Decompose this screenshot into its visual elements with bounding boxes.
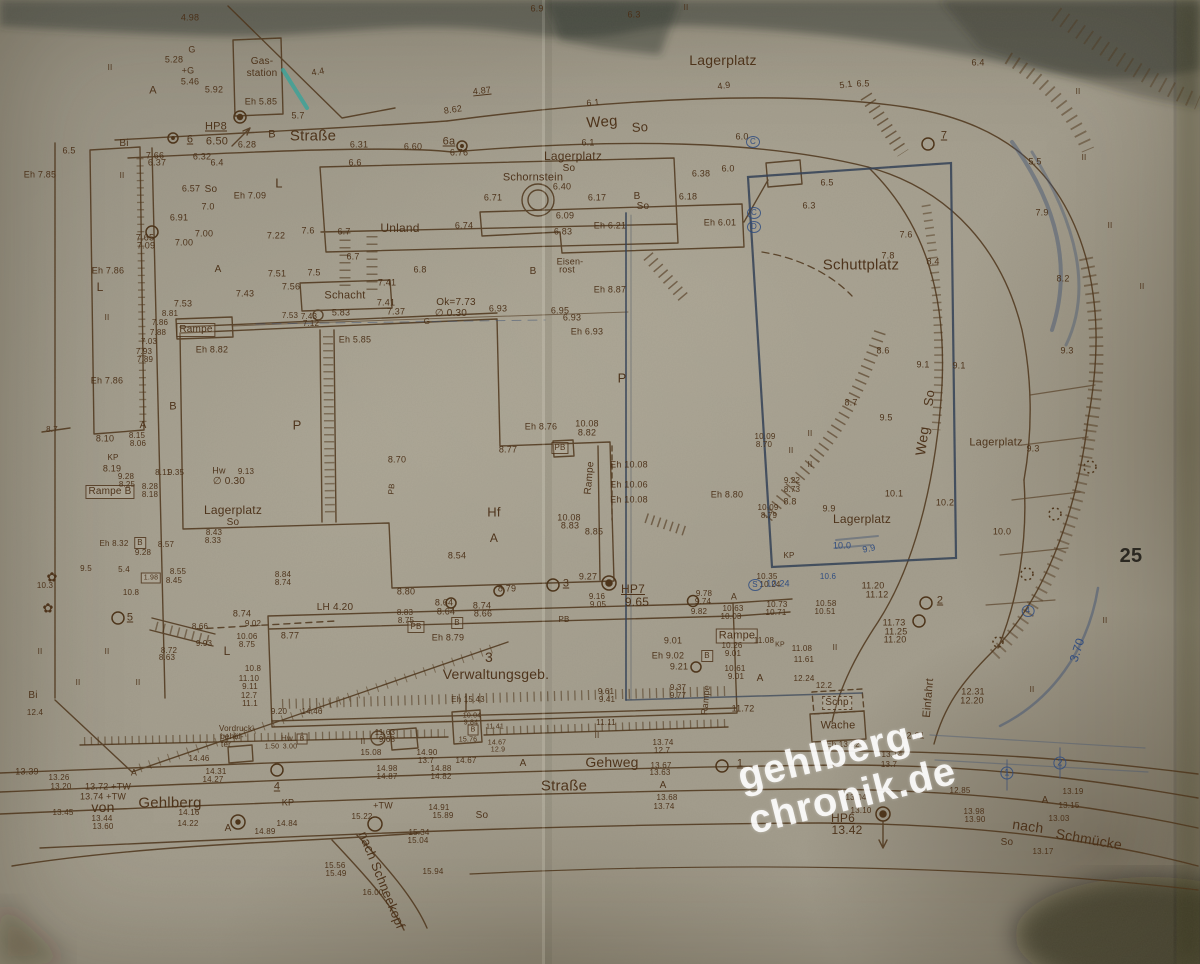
map-label: 4 bbox=[1022, 605, 1035, 617]
map-label: Eh 8.87 bbox=[594, 286, 626, 295]
map-label: Lagerplatz bbox=[544, 150, 602, 162]
map-label: 8.8 bbox=[783, 498, 796, 507]
map-label: 5.46 bbox=[181, 78, 199, 87]
map-label: 15.94 bbox=[422, 868, 443, 876]
map-label: Eh 15.43 bbox=[451, 696, 485, 704]
label-hp8: HP8 bbox=[205, 122, 227, 133]
map-label: L bbox=[97, 281, 104, 293]
map-label: 6.37 bbox=[148, 159, 166, 168]
label-weg-top: Weg bbox=[586, 113, 618, 130]
map-label: KP bbox=[783, 552, 794, 560]
map-label: 7.5 bbox=[307, 269, 320, 278]
map-label: 5.28 bbox=[165, 56, 183, 65]
map-label: So bbox=[563, 164, 576, 174]
map-label: 10.8 bbox=[123, 589, 139, 597]
map-label: 8.2 bbox=[1056, 275, 1069, 284]
map-label: 7.53 bbox=[174, 300, 192, 309]
map-label: 12.7 bbox=[654, 747, 670, 755]
map-label: 10.03 bbox=[720, 613, 741, 621]
map-label: 11.61 bbox=[794, 656, 814, 664]
map-label: Eh 7.85 bbox=[24, 171, 56, 180]
map-label: 9.05 bbox=[590, 601, 606, 609]
map-label: 9.28 bbox=[135, 549, 151, 557]
map-label: 6.5 bbox=[856, 80, 869, 89]
map-label: 13.72 +TW bbox=[85, 783, 131, 792]
map-label: A bbox=[215, 265, 222, 275]
map-label: 10.3 bbox=[37, 582, 53, 590]
label-schp: Schp bbox=[822, 696, 852, 710]
map-label: 9.93 bbox=[196, 640, 212, 648]
map-label: 6.5 bbox=[62, 147, 75, 156]
map-label: 8.77 bbox=[281, 632, 299, 641]
map-label: II bbox=[136, 679, 141, 687]
map-label: 5.1 bbox=[839, 80, 853, 91]
map-label: 8.79 bbox=[761, 512, 777, 520]
map-label: 5.83 bbox=[332, 309, 350, 318]
map-label: 9.68 bbox=[379, 736, 395, 744]
map-label: station bbox=[247, 69, 278, 79]
map-label: ∅ 0.30 bbox=[435, 309, 467, 319]
map-label: 7.0 bbox=[201, 203, 214, 212]
map-label: 7.6 bbox=[899, 231, 912, 240]
map-label: 6.74 bbox=[455, 222, 473, 231]
map-label: 8.74 bbox=[233, 610, 251, 619]
map-label: 7.00 bbox=[175, 239, 193, 248]
map-label: 14.67 bbox=[488, 740, 507, 747]
map-label: 10.24 bbox=[766, 580, 790, 589]
map-label: 8.81 bbox=[162, 310, 178, 318]
map-label: B bbox=[701, 650, 713, 662]
map-label: 15.89 bbox=[432, 812, 453, 820]
map-label: B bbox=[451, 617, 463, 629]
map-label: A bbox=[490, 532, 498, 544]
map-label: 8.82 bbox=[578, 429, 596, 438]
map-label: 6.38 bbox=[692, 170, 710, 179]
map-label: 8.33 bbox=[205, 537, 221, 545]
map-label: ∅ 0.30 bbox=[213, 477, 245, 487]
map-label: 7.53 bbox=[282, 312, 298, 320]
map-label: Rampe bbox=[584, 461, 597, 495]
map-label: 6.7 bbox=[337, 228, 350, 237]
map-label: 8.06 bbox=[130, 440, 146, 448]
map-label: 4.87 bbox=[472, 86, 491, 97]
map-label: 8.70 bbox=[388, 456, 406, 465]
map-label: 14.87 bbox=[376, 773, 397, 781]
map-label: 6.60 bbox=[404, 143, 422, 152]
map-label: G bbox=[424, 318, 430, 326]
map-label: Ok=7.73 bbox=[436, 298, 475, 308]
map-label: 6.91 bbox=[170, 214, 188, 223]
map-label: 7.56 bbox=[282, 283, 300, 292]
map-label: 8.83 bbox=[561, 522, 579, 531]
map-label: Eh 10.08 bbox=[610, 461, 648, 470]
map-label: 11.08 bbox=[792, 645, 812, 653]
map-label: 1.98 bbox=[141, 573, 161, 584]
map-label: 6.8 bbox=[413, 266, 426, 275]
map-label: 7.89 bbox=[137, 356, 153, 364]
map-label: 9.21 bbox=[670, 663, 688, 672]
map-label: 11.41 bbox=[486, 724, 504, 731]
map-label: II bbox=[361, 738, 366, 746]
map-label: 11.11 bbox=[596, 719, 616, 727]
map-label: 13.39 bbox=[15, 768, 39, 777]
map-label: KP bbox=[282, 799, 294, 808]
map-label: A bbox=[225, 824, 232, 834]
map-label: II bbox=[1108, 222, 1113, 230]
map-label: So bbox=[1001, 838, 1014, 848]
map-label: 8.7 bbox=[46, 426, 58, 434]
map-label: 15.08 bbox=[360, 749, 381, 757]
map-label: 8.54 bbox=[448, 552, 466, 561]
map-label: 4.98 bbox=[181, 14, 199, 23]
map-label: 10.1 bbox=[885, 490, 903, 499]
map-label: 6.0 bbox=[721, 165, 734, 174]
map-label: 12.2 bbox=[816, 682, 832, 690]
map-label: Eh 8.79 bbox=[432, 634, 464, 643]
map-label: A bbox=[149, 86, 157, 97]
map-label: Rampe bbox=[176, 323, 215, 337]
map-label: L bbox=[224, 645, 231, 657]
map-label: 13.42 bbox=[831, 824, 862, 836]
map-label: KP bbox=[775, 642, 785, 649]
map-label: 9.1 bbox=[952, 362, 965, 371]
label-nach-schneekopf: nach Schneekopf bbox=[357, 830, 408, 931]
map-label: 8.64 bbox=[437, 608, 455, 617]
map-label: B bbox=[468, 725, 479, 736]
map-label: Eh 6.21 bbox=[594, 222, 626, 231]
map-label: 9.41 bbox=[599, 696, 615, 704]
map-label: II bbox=[76, 679, 81, 687]
map-label: 9.27 bbox=[579, 573, 597, 582]
map-label: A bbox=[520, 759, 527, 769]
map-label: 11.08 bbox=[754, 637, 774, 645]
map-label: 14.46 bbox=[301, 708, 322, 716]
map-label: 6.4 bbox=[971, 59, 984, 68]
map-label: 7.86 bbox=[152, 319, 168, 327]
map-label: 8.75 bbox=[239, 641, 255, 649]
map-label: 7.03 bbox=[141, 338, 157, 346]
label-gasstation: Gas- bbox=[251, 57, 273, 67]
map-label: II bbox=[684, 4, 689, 12]
map-label: 8.7 bbox=[844, 399, 857, 408]
map-label: 9.5 bbox=[879, 414, 892, 423]
map-label: 5 bbox=[127, 613, 133, 624]
map-label: 11.12 bbox=[866, 591, 889, 600]
map-label: Eh 7.86 bbox=[91, 377, 123, 386]
map-label: Eh 7.09 bbox=[234, 192, 266, 201]
map-label: II bbox=[595, 732, 600, 740]
map-label: C bbox=[747, 207, 761, 219]
map-label: 13.68 bbox=[656, 794, 677, 802]
map-label: 11.72 bbox=[732, 705, 755, 714]
map-label: 9.82 bbox=[691, 608, 707, 616]
label-gehweg: Gehweg bbox=[585, 755, 638, 769]
map-label: 9.74 bbox=[695, 598, 711, 606]
map-label: 13.15 bbox=[1058, 802, 1079, 810]
map-label: Eh 8.32 bbox=[100, 540, 129, 548]
map-label: rost bbox=[559, 266, 575, 275]
map-label: 13.74 bbox=[653, 803, 674, 811]
map-label: 8.77 bbox=[499, 446, 517, 455]
map-label: 8.45 bbox=[166, 577, 182, 585]
map-label: 9.20 bbox=[271, 708, 287, 716]
map-label: Eh 5.85 bbox=[245, 98, 277, 107]
map-label: 6.32 bbox=[193, 153, 211, 162]
map-label: C bbox=[746, 136, 760, 148]
map-label: 6.7 bbox=[346, 253, 359, 262]
map-label: 5.92 bbox=[205, 86, 223, 95]
map-label: 14.67 bbox=[455, 757, 476, 765]
map-label: 4 bbox=[274, 782, 280, 793]
map-label: 9.01 bbox=[664, 637, 682, 646]
map-label: Hw bbox=[212, 467, 225, 476]
map-label: Eh 8.80 bbox=[711, 491, 743, 500]
map-label: 2 bbox=[1053, 757, 1066, 770]
map-label: 8.70 bbox=[756, 441, 772, 449]
map-label: II bbox=[105, 314, 110, 322]
map-label: 6.09 bbox=[556, 212, 574, 221]
label-25: 25 bbox=[1120, 546, 1143, 566]
map-label: 14.16 bbox=[178, 809, 199, 817]
map-label: 3.00 bbox=[283, 744, 297, 751]
map-label: ✿ bbox=[42, 602, 53, 615]
label-rampe-b: Rampe B bbox=[85, 485, 134, 499]
map-label: 14.46 bbox=[188, 755, 209, 763]
map-label: 9.65 bbox=[625, 596, 649, 608]
map-label: 11.20 bbox=[884, 636, 907, 645]
map-label: 8.85 bbox=[585, 528, 603, 537]
map-label: 7.9 bbox=[1035, 209, 1048, 218]
map-label: 13.19 bbox=[1062, 788, 1083, 796]
map-label: 10.71 bbox=[765, 609, 786, 617]
map-label: 6.5 bbox=[820, 179, 833, 188]
map-label: von bbox=[91, 800, 114, 814]
map-label: A bbox=[131, 769, 137, 778]
map-label: 7 bbox=[941, 131, 947, 142]
map-label: 9.13 bbox=[238, 468, 254, 476]
map-label: 13.90 bbox=[964, 816, 985, 824]
map-label: Lagerplatz bbox=[833, 513, 891, 525]
map-label: Eh 5.85 bbox=[339, 336, 371, 345]
map-label: Eh 10.08 bbox=[610, 496, 648, 505]
map-label: +G bbox=[182, 67, 195, 76]
map-label: Lagerplatz bbox=[204, 504, 262, 516]
map-label: A bbox=[731, 593, 737, 602]
map-label: 15.04 bbox=[407, 837, 428, 845]
map-label: 7.6 bbox=[301, 227, 314, 236]
map-label: Eh 9.02 bbox=[652, 652, 684, 661]
map-label: So bbox=[476, 811, 489, 821]
map-label: 14.22 bbox=[177, 820, 198, 828]
map-label: II bbox=[120, 172, 125, 180]
map-label: 6.31 bbox=[350, 141, 368, 150]
label-hf: Hf bbox=[487, 506, 500, 519]
map-label: II bbox=[105, 648, 110, 656]
map-label: A bbox=[1042, 796, 1049, 806]
label-schuttplatz: Schuttplatz bbox=[823, 258, 899, 273]
map-label: 10.04 bbox=[463, 713, 482, 720]
map-label: 6.50 bbox=[206, 137, 228, 148]
map-label: II bbox=[1140, 283, 1145, 291]
map-label: Eh 7.86 bbox=[92, 267, 124, 276]
map-label: 6.76 bbox=[450, 149, 468, 158]
map-label: 6.93 bbox=[563, 314, 581, 323]
map-label: Eh 6.01 bbox=[704, 219, 736, 228]
map-label: 7.88 bbox=[150, 329, 166, 337]
label-weg-vertical: Weg bbox=[913, 426, 931, 457]
map-label: P bbox=[618, 372, 627, 385]
map-label: II bbox=[1103, 617, 1108, 625]
map-label: 6.1 bbox=[586, 98, 600, 108]
map-label: 4.4 bbox=[311, 66, 325, 77]
map-label: Eh 10.06 bbox=[610, 481, 648, 490]
map-label: 13.45 bbox=[52, 809, 73, 817]
map-label: 8.80 bbox=[397, 588, 415, 597]
map-label: 9.9 bbox=[862, 543, 877, 555]
map-labels: 4.986.96.3II4.44.874.95.16.4LagerplatzG5… bbox=[0, 0, 1200, 964]
map-label: 5.7 bbox=[291, 112, 304, 121]
map-label: 9.35 bbox=[168, 469, 184, 477]
map-label: 12.24 bbox=[793, 675, 814, 683]
map-label: PB bbox=[388, 483, 397, 495]
map-label: 14.89 bbox=[254, 828, 275, 836]
map-label: 14.27 bbox=[202, 776, 223, 784]
map-label: 6.71 bbox=[484, 194, 502, 203]
map-label: 12.4 bbox=[27, 709, 43, 717]
map-label: 10.0 bbox=[993, 528, 1011, 537]
map-label: 3.70 bbox=[1068, 637, 1087, 664]
map-label: 2 bbox=[937, 596, 943, 607]
map-label: 8.75 bbox=[398, 617, 414, 625]
map-label: 6.93 bbox=[489, 305, 507, 314]
map-label: 8.18 bbox=[142, 491, 158, 499]
map-label: B bbox=[169, 402, 177, 413]
map-label: II bbox=[789, 447, 794, 455]
map-label: 4.9 bbox=[717, 81, 731, 92]
map-label: 9.1 bbox=[916, 361, 929, 370]
map-label: II bbox=[108, 64, 113, 72]
map-label: So bbox=[205, 185, 218, 195]
map-label: 14.84 bbox=[276, 820, 297, 828]
map-label: 13.03 bbox=[1048, 815, 1069, 823]
map-label: So bbox=[637, 202, 650, 212]
map-label: 9.3 bbox=[1060, 347, 1073, 356]
map-label: D bbox=[747, 221, 761, 233]
map-label: Lagerplatz bbox=[969, 438, 1022, 449]
map-label: 15.49 bbox=[325, 870, 346, 878]
map-label: 8.6 bbox=[876, 347, 889, 356]
map-label: 8.66 bbox=[474, 610, 492, 619]
label-strasse-top: Straße bbox=[290, 129, 336, 144]
map-label: 6.28 bbox=[238, 141, 256, 150]
map-label: 8.62 bbox=[443, 104, 462, 115]
map-label: 6.83 bbox=[554, 228, 572, 237]
map-label: 8.10 bbox=[96, 435, 114, 444]
map-label: Schmücke bbox=[1055, 826, 1123, 851]
map-label: LH 4.20 bbox=[317, 603, 353, 613]
map-label: P bbox=[293, 419, 302, 432]
scanned-site-plan: 4.986.96.3II4.44.874.95.16.4LagerplatzG5… bbox=[0, 0, 1200, 964]
map-label: 13.17 bbox=[1032, 848, 1053, 856]
map-label: Eh 6.93 bbox=[571, 328, 603, 337]
map-label: Eh 8.76 bbox=[525, 423, 557, 432]
map-label: 8.55 bbox=[170, 568, 186, 576]
map-label: KP bbox=[107, 454, 118, 462]
map-label: 3 bbox=[563, 579, 569, 590]
label-unland: Unland bbox=[380, 222, 419, 234]
map-label: 9.02 bbox=[245, 620, 261, 628]
map-label: 8.63 bbox=[159, 654, 175, 662]
map-label: 8.57 bbox=[158, 541, 174, 549]
map-label: L bbox=[275, 177, 282, 190]
map-label: 6.40 bbox=[553, 183, 571, 192]
map-label: 7.41 bbox=[378, 279, 396, 288]
map-label: II bbox=[1076, 88, 1081, 96]
map-label: 5.4 bbox=[118, 566, 130, 574]
label-lagerplatz-top: Lagerplatz bbox=[689, 53, 756, 67]
map-label: 13.60 bbox=[92, 823, 113, 831]
map-label: 6a bbox=[443, 137, 456, 148]
map-label: Eh 8.82 bbox=[196, 346, 228, 355]
map-label: 6.3 bbox=[802, 202, 815, 211]
map-label: 6.57 bbox=[182, 185, 200, 194]
map-label: 9.3 bbox=[1026, 445, 1039, 454]
map-label: 1.50 bbox=[265, 744, 279, 751]
map-label: 8.66 bbox=[192, 623, 208, 631]
map-label: 6.18 bbox=[679, 193, 697, 202]
map-label: 6.17 bbox=[588, 194, 606, 203]
map-label: Hw bbox=[281, 735, 293, 743]
map-label: B bbox=[530, 267, 537, 277]
map-label: Bi bbox=[28, 691, 37, 701]
map-label: II bbox=[808, 461, 813, 469]
map-label: 13.26 bbox=[48, 774, 69, 782]
map-label: II bbox=[1082, 154, 1087, 162]
map-label: 15.76 bbox=[459, 737, 478, 744]
label-schacht: Schacht bbox=[324, 291, 365, 302]
map-label: 10.0 bbox=[833, 542, 851, 551]
map-label: 8.73 bbox=[784, 486, 800, 494]
map-label: 6.6 bbox=[348, 159, 361, 168]
map-label: B bbox=[268, 130, 276, 141]
map-label: +TW bbox=[373, 802, 393, 811]
label-nach-schmuecke: nach bbox=[1012, 817, 1045, 835]
map-label: 9.5 bbox=[80, 565, 92, 573]
map-label: 7.09 bbox=[137, 242, 155, 251]
map-label: 9.22 bbox=[784, 477, 800, 485]
map-label: 13.63 bbox=[649, 769, 670, 777]
map-label: 7.22 bbox=[267, 232, 285, 241]
map-label: 9.11 bbox=[242, 683, 258, 691]
map-label: 11.1 bbox=[242, 700, 258, 708]
map-label: II bbox=[833, 644, 838, 652]
map-label: II bbox=[808, 430, 813, 438]
map-label: 14.82 bbox=[430, 773, 451, 781]
map-label: 8.79 bbox=[498, 585, 516, 594]
map-label: 5.5 bbox=[1028, 158, 1041, 167]
map-label: 6.1 bbox=[581, 139, 594, 148]
map-label: 10.6 bbox=[820, 573, 836, 581]
map-label: 15.22 bbox=[351, 813, 372, 821]
map-label: 9.01 bbox=[728, 673, 744, 681]
map-label: 10.8 bbox=[245, 665, 261, 673]
map-label: 6 bbox=[187, 135, 193, 146]
map-label: So bbox=[631, 120, 648, 134]
map-label: 8.4 bbox=[926, 258, 939, 267]
map-label: 9.01 bbox=[725, 650, 741, 658]
map-label: 12.9 bbox=[491, 747, 505, 754]
map-label: PB bbox=[551, 442, 568, 454]
